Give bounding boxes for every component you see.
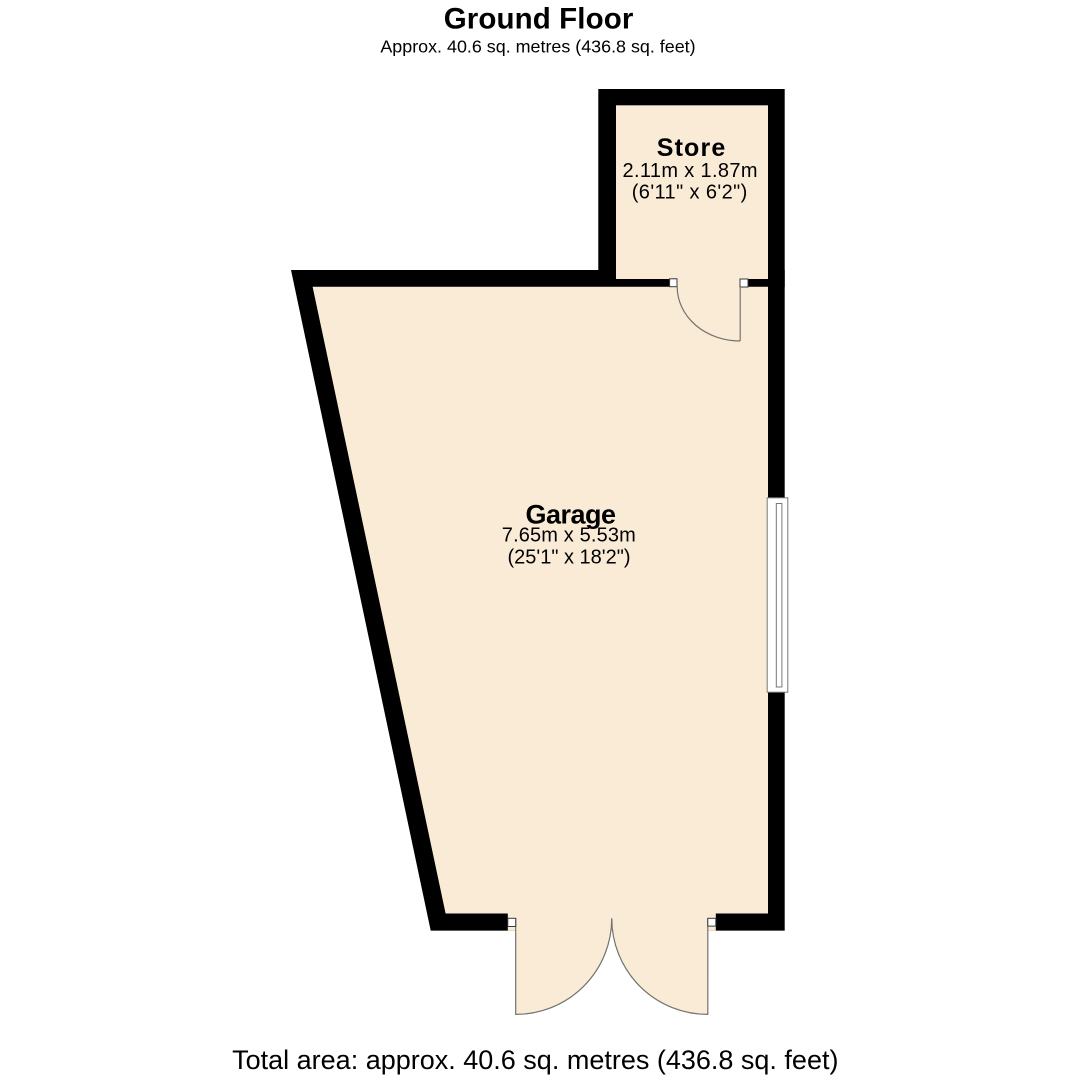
svg-text:(6'11" x 6'2"): (6'11" x 6'2") [632,181,748,203]
svg-text:Store: Store [657,134,726,162]
svg-text:Total area: approx. 40.6 sq. m: Total area: approx. 40.6 sq. metres (436… [232,1045,838,1075]
svg-text:2.11m x 1.87m: 2.11m x 1.87m [623,160,758,182]
svg-text:Ground Floor: Ground Floor [444,3,634,36]
svg-text:Approx. 40.6 sq. metres (436.8: Approx. 40.6 sq. metres (436.8 sq. feet) [380,37,695,57]
svg-text:(25'1" x 18'2"): (25'1" x 18'2") [508,546,631,568]
svg-text:7.65m x 5.53m: 7.65m x 5.53m [502,525,636,547]
